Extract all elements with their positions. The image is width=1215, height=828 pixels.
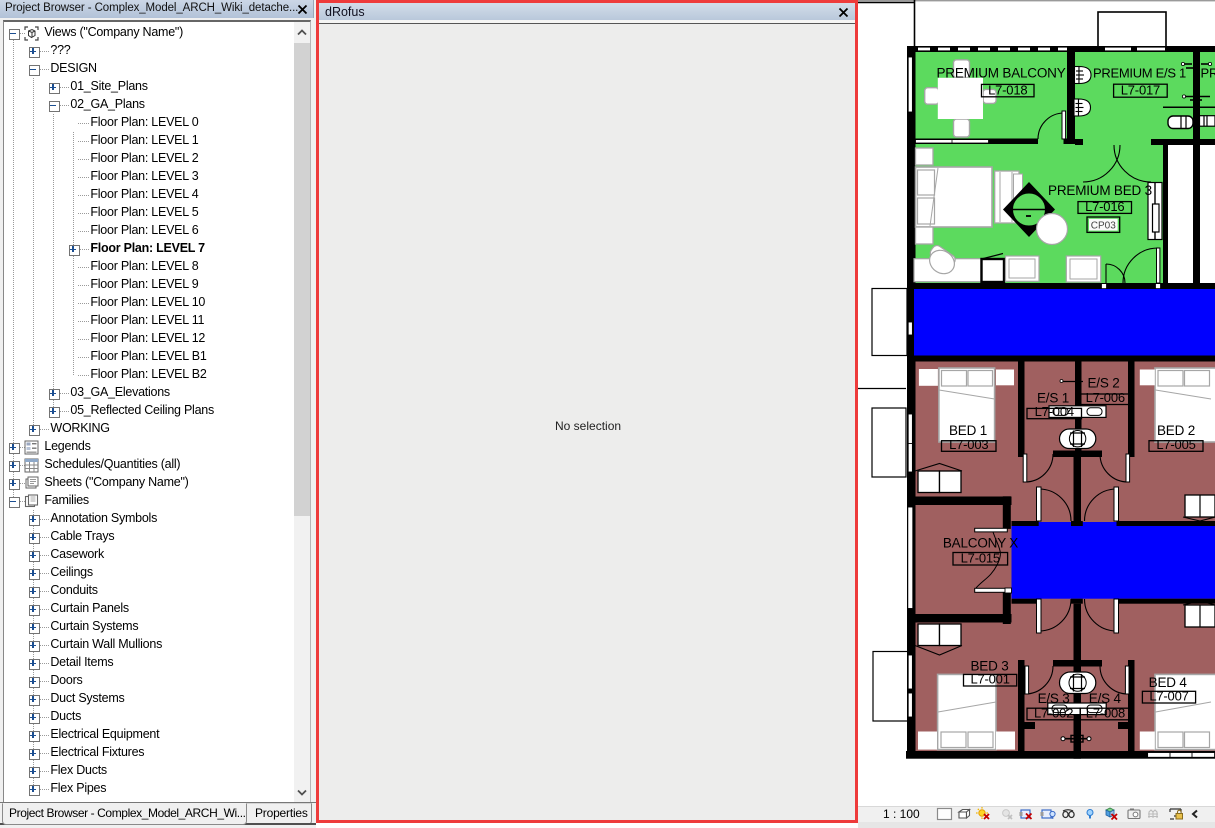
svg-text:L7-016: L7-016 [1085, 199, 1124, 214]
svg-text:BALCONY X: BALCONY X [943, 536, 1018, 551]
svg-text:CP03: CP03 [1091, 220, 1116, 231]
svg-text:BED 2: BED 2 [1157, 423, 1195, 438]
svg-text:PREMIUM BED 3: PREMIUM BED 3 [1048, 183, 1152, 198]
svg-text:PREMIUM BALCONY: PREMIUM BALCONY [936, 66, 1065, 81]
svg-text:L7-007: L7-007 [1149, 689, 1188, 704]
svg-text:1 : 100: 1 : 100 [883, 807, 920, 821]
svg-text:L7-008: L7-008 [1086, 705, 1125, 720]
svg-text:L7-017: L7-017 [1121, 83, 1160, 98]
svg-text:L7-001: L7-001 [970, 672, 1009, 687]
svg-text:L7-005: L7-005 [1156, 437, 1195, 452]
svg-text:BED 1: BED 1 [949, 423, 987, 438]
svg-text:E/S 3: E/S 3 [1038, 691, 1070, 706]
svg-text:L7-006: L7-006 [1086, 390, 1125, 405]
svg-text:PREMIUM E/S 1: PREMIUM E/S 1 [1093, 66, 1186, 81]
svg-text:L7-004: L7-004 [1035, 404, 1074, 419]
svg-text:E/S 2: E/S 2 [1087, 375, 1119, 390]
svg-text:L7-002: L7-002 [1034, 705, 1073, 720]
svg-text:E/S 4: E/S 4 [1089, 691, 1122, 706]
svg-text:L7-018: L7-018 [988, 82, 1027, 97]
svg-text:L7-015: L7-015 [961, 551, 1000, 566]
svg-text:PREMIUM: PREMIUM [1201, 66, 1215, 81]
svg-text:L7-003: L7-003 [949, 437, 988, 452]
